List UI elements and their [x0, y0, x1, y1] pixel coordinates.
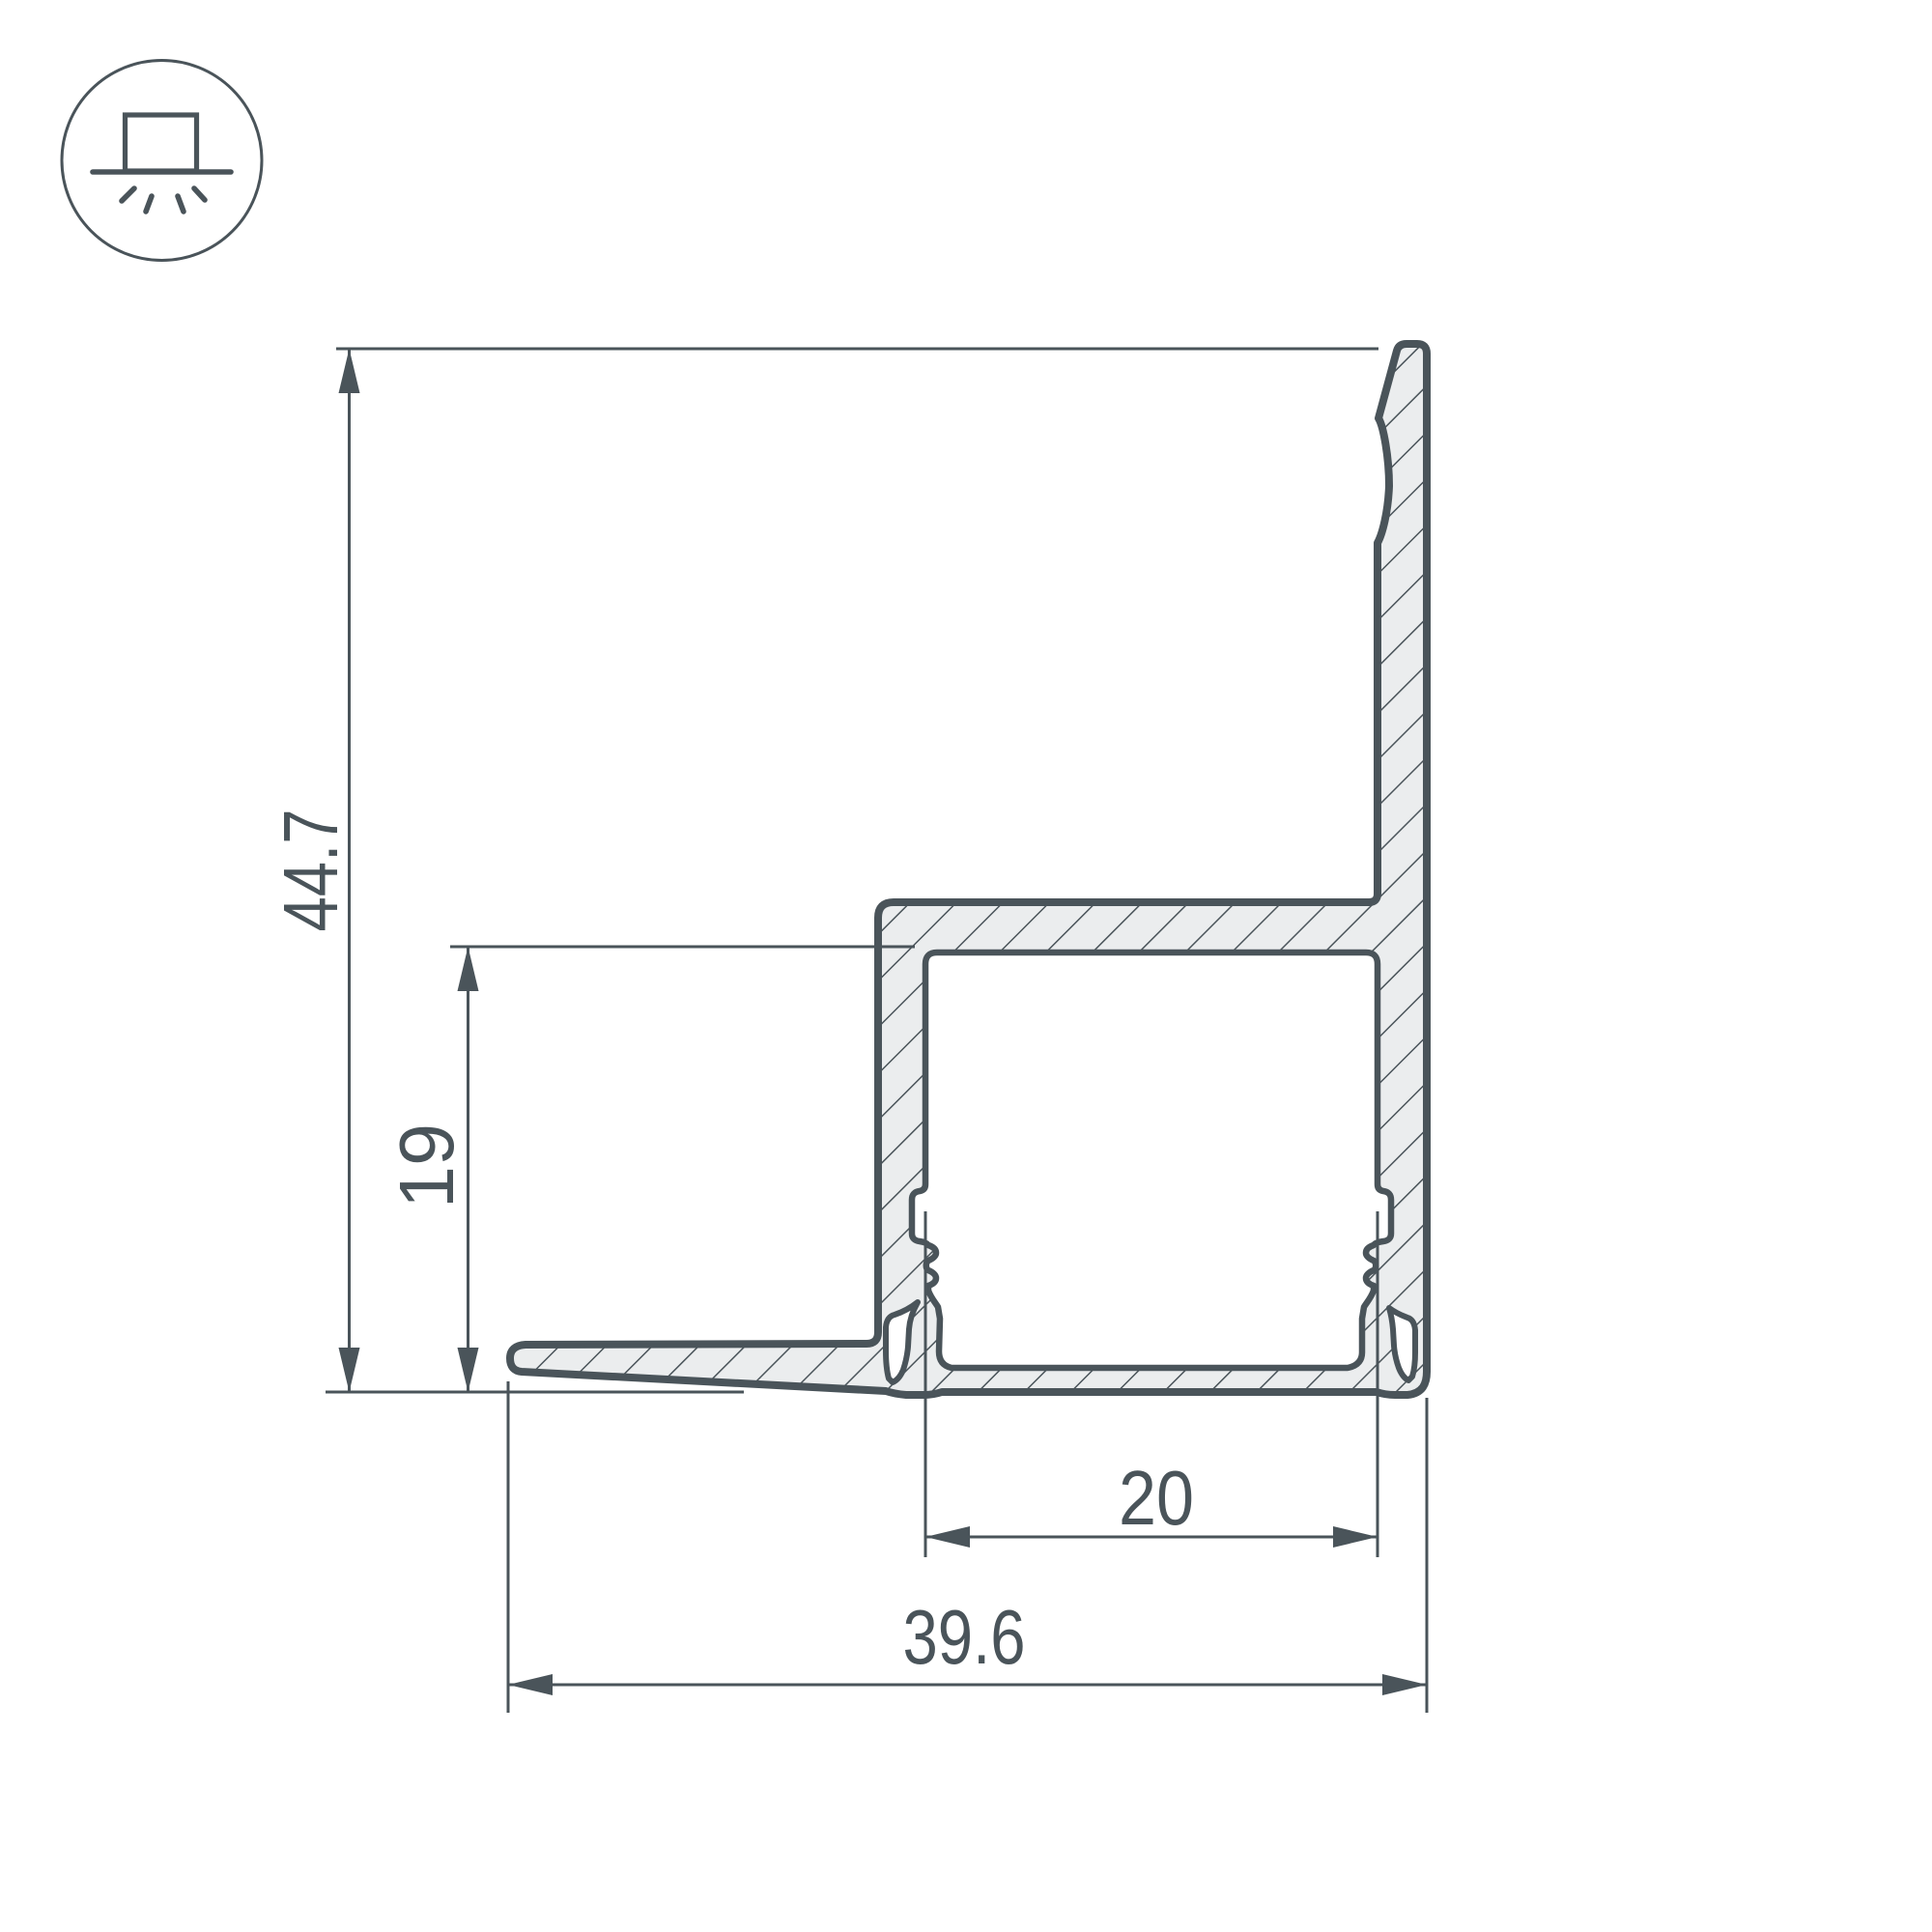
svg-text:19: 19: [384, 1123, 469, 1208]
svg-text:39.6: 39.6: [903, 1594, 1026, 1680]
svg-text:44.7: 44.7: [268, 810, 354, 932]
svg-text:20: 20: [1119, 1455, 1194, 1541]
